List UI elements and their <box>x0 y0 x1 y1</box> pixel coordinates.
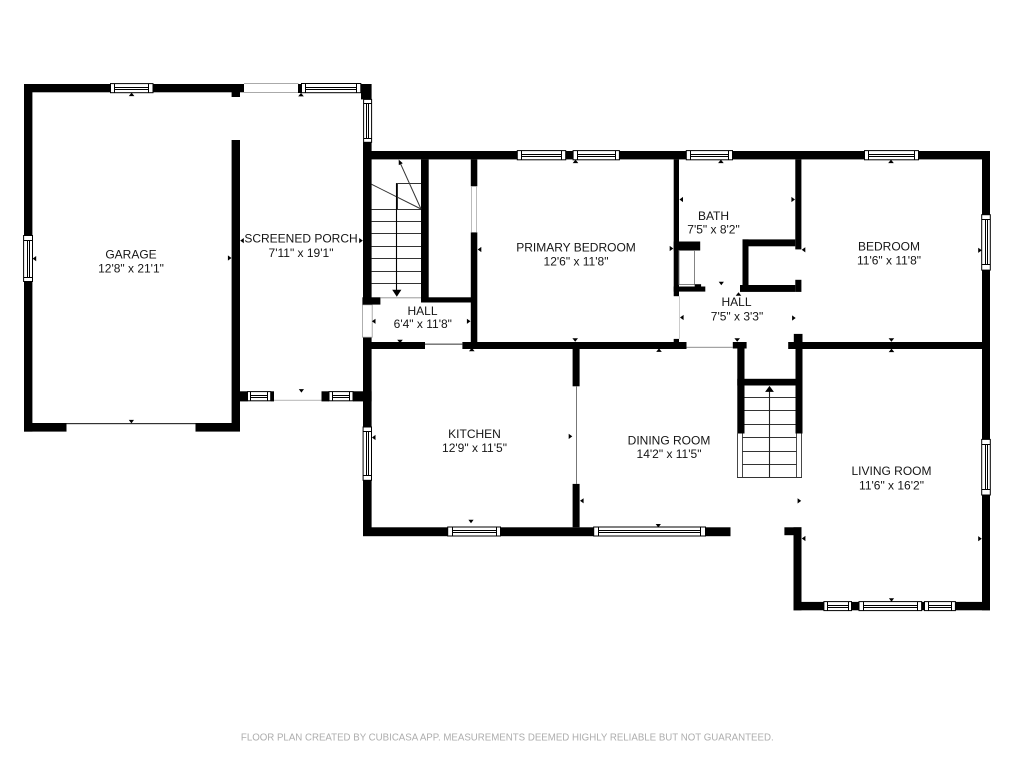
svg-text:7'11" x 19'1": 7'11" x 19'1" <box>269 246 334 260</box>
svg-text:7'5" x 3'3": 7'5" x 3'3" <box>711 310 763 324</box>
svg-text:11'6" x 11'8": 11'6" x 11'8" <box>857 254 921 268</box>
svg-text:12'6" x 11'8": 12'6" x 11'8" <box>544 254 609 268</box>
svg-text:LIVING ROOM: LIVING ROOM <box>851 464 931 478</box>
svg-text:BATH: BATH <box>698 209 729 223</box>
svg-text:GARAGE: GARAGE <box>105 247 156 261</box>
svg-text:11'6" x 16'2": 11'6" x 16'2" <box>859 479 924 493</box>
svg-text:12'9" x 11'5": 12'9" x 11'5" <box>442 441 507 455</box>
svg-text:HALL: HALL <box>721 295 751 309</box>
svg-text:HALL: HALL <box>407 304 437 318</box>
svg-text:KITCHEN: KITCHEN <box>448 427 501 441</box>
svg-text:14'2" x 11'5": 14'2" x 11'5" <box>637 447 702 461</box>
svg-text:6'4" x 11'8": 6'4" x 11'8" <box>394 317 452 331</box>
svg-text:PRIMARY BEDROOM: PRIMARY BEDROOM <box>516 240 636 254</box>
svg-text:DINING ROOM: DINING ROOM <box>628 433 711 447</box>
svg-text:12'8" x 21'1": 12'8" x 21'1" <box>98 261 164 275</box>
svg-text:7'5" x 8'2": 7'5" x 8'2" <box>687 223 739 237</box>
svg-text:SCREENED PORCH: SCREENED PORCH <box>244 232 357 246</box>
svg-text:BEDROOM: BEDROOM <box>858 240 920 254</box>
svg-text:FLOOR PLAN CREATED BY CUBICASA: FLOOR PLAN CREATED BY CUBICASA APP. MEAS… <box>241 732 774 743</box>
